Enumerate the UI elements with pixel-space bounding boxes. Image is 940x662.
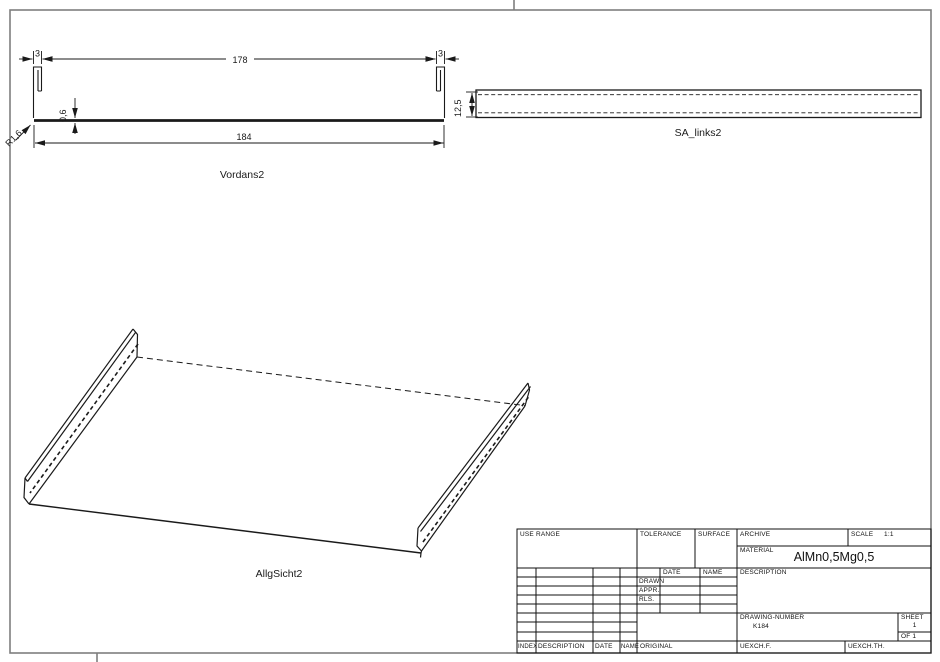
iso-left-ridge (25, 329, 133, 478)
iso-left-bend (29, 357, 137, 504)
front-right-flange (437, 67, 445, 118)
uexch-th-label: UEXCH.TH. (848, 644, 885, 651)
iso-plate-front-edge (29, 504, 421, 553)
uexch-f-label: UEXCH.F. (740, 644, 771, 651)
drawing-number-label: DRAWING-NUMBER (740, 615, 804, 622)
front-view: 3 178 3 184 0,6 R1,6 Vordans2 (3, 49, 459, 182)
name-col-label: NAME (621, 644, 639, 650)
side-outline (476, 90, 921, 118)
dim-radius: R1,6 (3, 128, 24, 149)
iso-right-bend-marks (423, 397, 529, 542)
original-label: ORIGINAL (640, 644, 673, 651)
drawing-number-value: K184 (753, 624, 769, 631)
appr-label: APPR. (639, 588, 660, 595)
material-value: AlMn0,5Mg0,5 (737, 551, 931, 564)
side-view-label: SA_links2 (675, 127, 722, 139)
iso-view-label: AllgSicht2 (256, 568, 303, 580)
scale-label: SCALE (851, 532, 873, 539)
iso-plate-rear-edge (137, 357, 525, 406)
sheet-label: SHEET (901, 615, 924, 622)
dim-width-overall: 184 (236, 132, 251, 142)
date-col-label: DATE (595, 644, 613, 651)
dim-side-height: 12,5 (453, 99, 463, 117)
iso-left-lip (28, 333, 136, 482)
title-block-grid (517, 529, 931, 653)
date-header: DATE (663, 570, 681, 577)
side-view: 12,5 SA_links2 (453, 90, 921, 139)
dim-width-inner: 178 (232, 55, 247, 65)
drawn-label: DRAWN (639, 579, 664, 586)
rls-label: RLS. (639, 597, 654, 604)
index-col-label: INDEX (518, 644, 537, 650)
front-view-label: Vordans2 (220, 169, 265, 181)
iso-view: AllgSicht2 (24, 329, 531, 580)
surface-label: SURFACE (698, 532, 730, 539)
use-range-label: USE RANGE (520, 532, 560, 539)
drawing-sheet: { "title_block": { "use_range_label": "U… (0, 0, 940, 662)
iso-right-lip (421, 387, 531, 532)
iso-left-front-cap (24, 478, 29, 504)
sheet-number: 1 (898, 623, 931, 630)
of-label: OF 1 (901, 634, 916, 641)
title-block-border (517, 529, 931, 653)
dim-flange-left: 3 (35, 49, 40, 59)
tolerance-label: TOLERANCE (640, 532, 681, 539)
scale-value: 1:1 (884, 532, 894, 539)
title-block-lines (517, 529, 931, 653)
iso-right-bend (422, 406, 526, 551)
iso-left-bend-marks (30, 344, 138, 493)
name-header: NAME (703, 570, 723, 577)
dim-flange-right: 3 (438, 49, 443, 59)
description-label: DESCRIPTION (740, 570, 787, 577)
front-left-flange (34, 67, 42, 118)
description-col-label: DESCRIPTION (538, 644, 585, 651)
iso-right-ridge (418, 383, 528, 528)
front-dimension-texts: 3 178 3 184 0,6 R1,6 (3, 49, 443, 149)
archive-label: ARCHIVE (740, 532, 770, 539)
dim-thickness: 0,6 (58, 109, 68, 122)
